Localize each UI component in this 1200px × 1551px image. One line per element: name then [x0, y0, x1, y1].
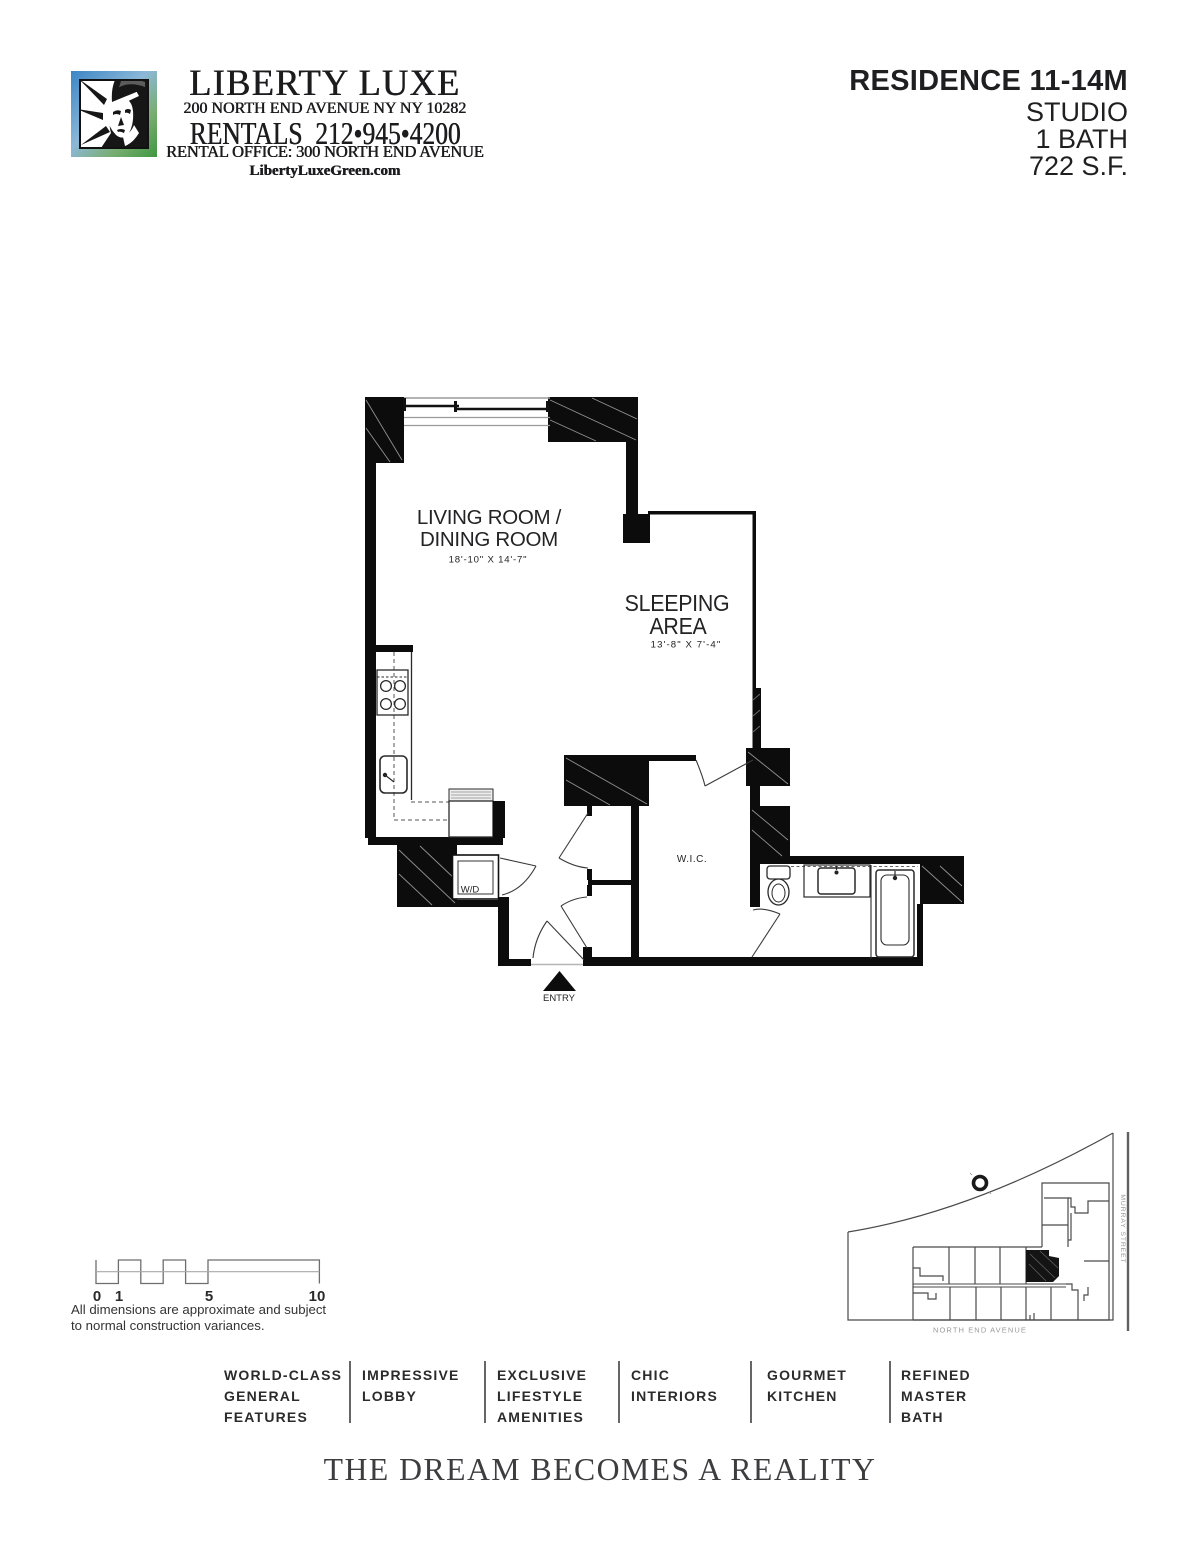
svg-text:SLEEPING: SLEEPING	[625, 590, 730, 616]
svg-text:W.I.C.: W.I.C.	[677, 854, 707, 865]
svg-text:ENTRY: ENTRY	[543, 993, 576, 1004]
svg-text:LIVING ROOM /: LIVING ROOM /	[417, 506, 562, 529]
svg-text:MURRAY STREET: MURRAY STREET	[1119, 1194, 1126, 1263]
svg-text:13'-8" X 7'-4": 13'-8" X 7'-4"	[651, 640, 722, 651]
svg-text:NORTH END AVENUE: NORTH END AVENUE	[933, 1326, 1027, 1335]
svg-text:18'-10" X 14'-7": 18'-10" X 14'-7"	[449, 555, 528, 566]
svg-text:W/D: W/D	[461, 885, 480, 896]
svg-text:DINING ROOM: DINING ROOM	[420, 528, 558, 551]
svg-text:AREA: AREA	[649, 613, 707, 639]
